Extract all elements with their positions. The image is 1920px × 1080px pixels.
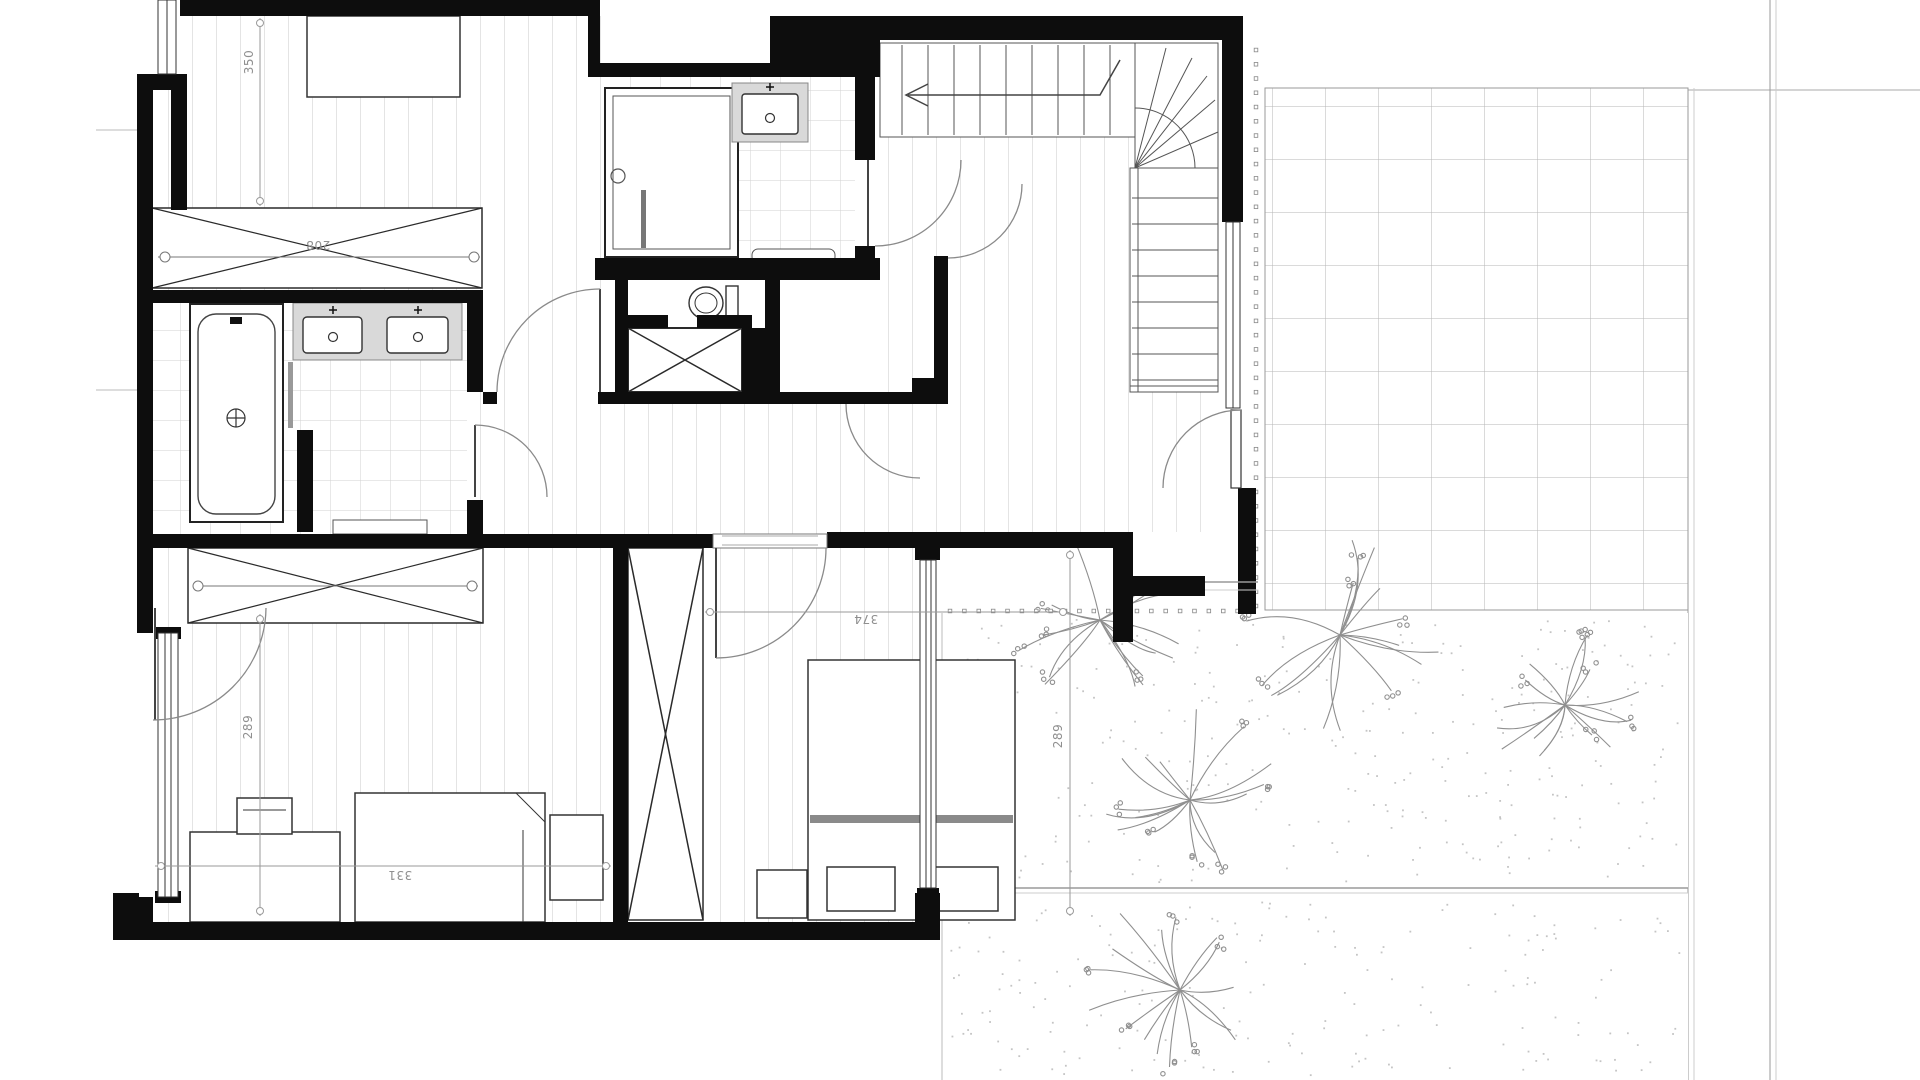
- floor-plan-drawing: 350 208 374 289 289 331: [0, 0, 1920, 1080]
- wall-bathT-bottom: [595, 258, 880, 280]
- dim-208-label: 208: [306, 238, 330, 252]
- window-stair-east: [1226, 222, 1240, 408]
- washbasin-top: [732, 83, 808, 142]
- stair-winder: [1135, 43, 1218, 168]
- bed-top-left: [307, 16, 460, 97]
- window-bedroom1-west: [155, 627, 181, 903]
- wall-south: [137, 922, 940, 940]
- stair-lower-run: [1130, 168, 1218, 392]
- bed-headboard-line: [810, 815, 1013, 823]
- wall-north-right: [880, 16, 1243, 40]
- terrace-tile-grid: [1265, 88, 1688, 610]
- wall-east-upper: [1222, 40, 1243, 222]
- bathtub: [190, 304, 283, 522]
- wall-nw-corner: [137, 74, 187, 90]
- wardrobe-tall-divider: [628, 548, 703, 920]
- wall-wc-right: [765, 280, 780, 328]
- bath-shelf: [333, 520, 427, 534]
- tub-drain-icon: [227, 409, 245, 427]
- wall-terrace-L: [1113, 532, 1133, 642]
- dim-374-label: 374: [854, 612, 878, 626]
- tub-faucet-icon: [230, 317, 242, 324]
- wall-bathT-right-a: [855, 77, 875, 160]
- wall-east-lower: [1238, 488, 1256, 614]
- wall-bathL-top: [153, 290, 467, 303]
- garden-bed-lower: [942, 893, 1688, 1080]
- floor-plan-canvas: 350 208 374 289 289 331: [0, 0, 1920, 1080]
- dim-289-left-label: 289: [241, 715, 255, 739]
- hall-arm-floor: [483, 292, 605, 392]
- wall-bathL-right: [467, 290, 483, 392]
- nightstand-bedroom1: [550, 815, 603, 900]
- tub-glass-screen: [288, 362, 293, 428]
- wall-bedroom2-top: [827, 532, 1113, 548]
- wall-north-left: [180, 0, 600, 16]
- dim-208: 208: [306, 238, 330, 252]
- bed-bedroom2: [808, 660, 1015, 920]
- wardrobe-bedroom1: [188, 548, 483, 623]
- dim-289-right-label: 289: [1051, 724, 1065, 748]
- duct-shaft: [628, 328, 742, 392]
- wall-tub-stub: [297, 430, 313, 532]
- wall-corridor-top: [780, 392, 920, 404]
- double-washbasin: [293, 303, 462, 360]
- stair-upper-flight: [880, 43, 1135, 137]
- wall-closet-left: [613, 534, 628, 922]
- wall-bathL-bottom: [153, 534, 613, 548]
- dim-350-label: 350: [242, 50, 256, 74]
- pillow-left: [827, 867, 895, 911]
- bed-bedroom1: [355, 793, 545, 922]
- garden-bed-upper: [942, 613, 1688, 888]
- shower: [605, 88, 738, 257]
- wall-wc-left: [615, 280, 628, 404]
- dim-331-label: 331: [388, 868, 412, 882]
- chair-bedroom1: [237, 798, 292, 834]
- shower-handle-icon: [641, 190, 646, 248]
- pillow-right: [930, 867, 998, 911]
- wall-west: [137, 90, 153, 633]
- window-nw: [158, 0, 176, 74]
- toilet: [689, 286, 738, 320]
- wall-roomB-west: [934, 256, 948, 382]
- nightstand-bedroom2: [757, 870, 807, 918]
- window-bedroom2-east: [917, 548, 939, 900]
